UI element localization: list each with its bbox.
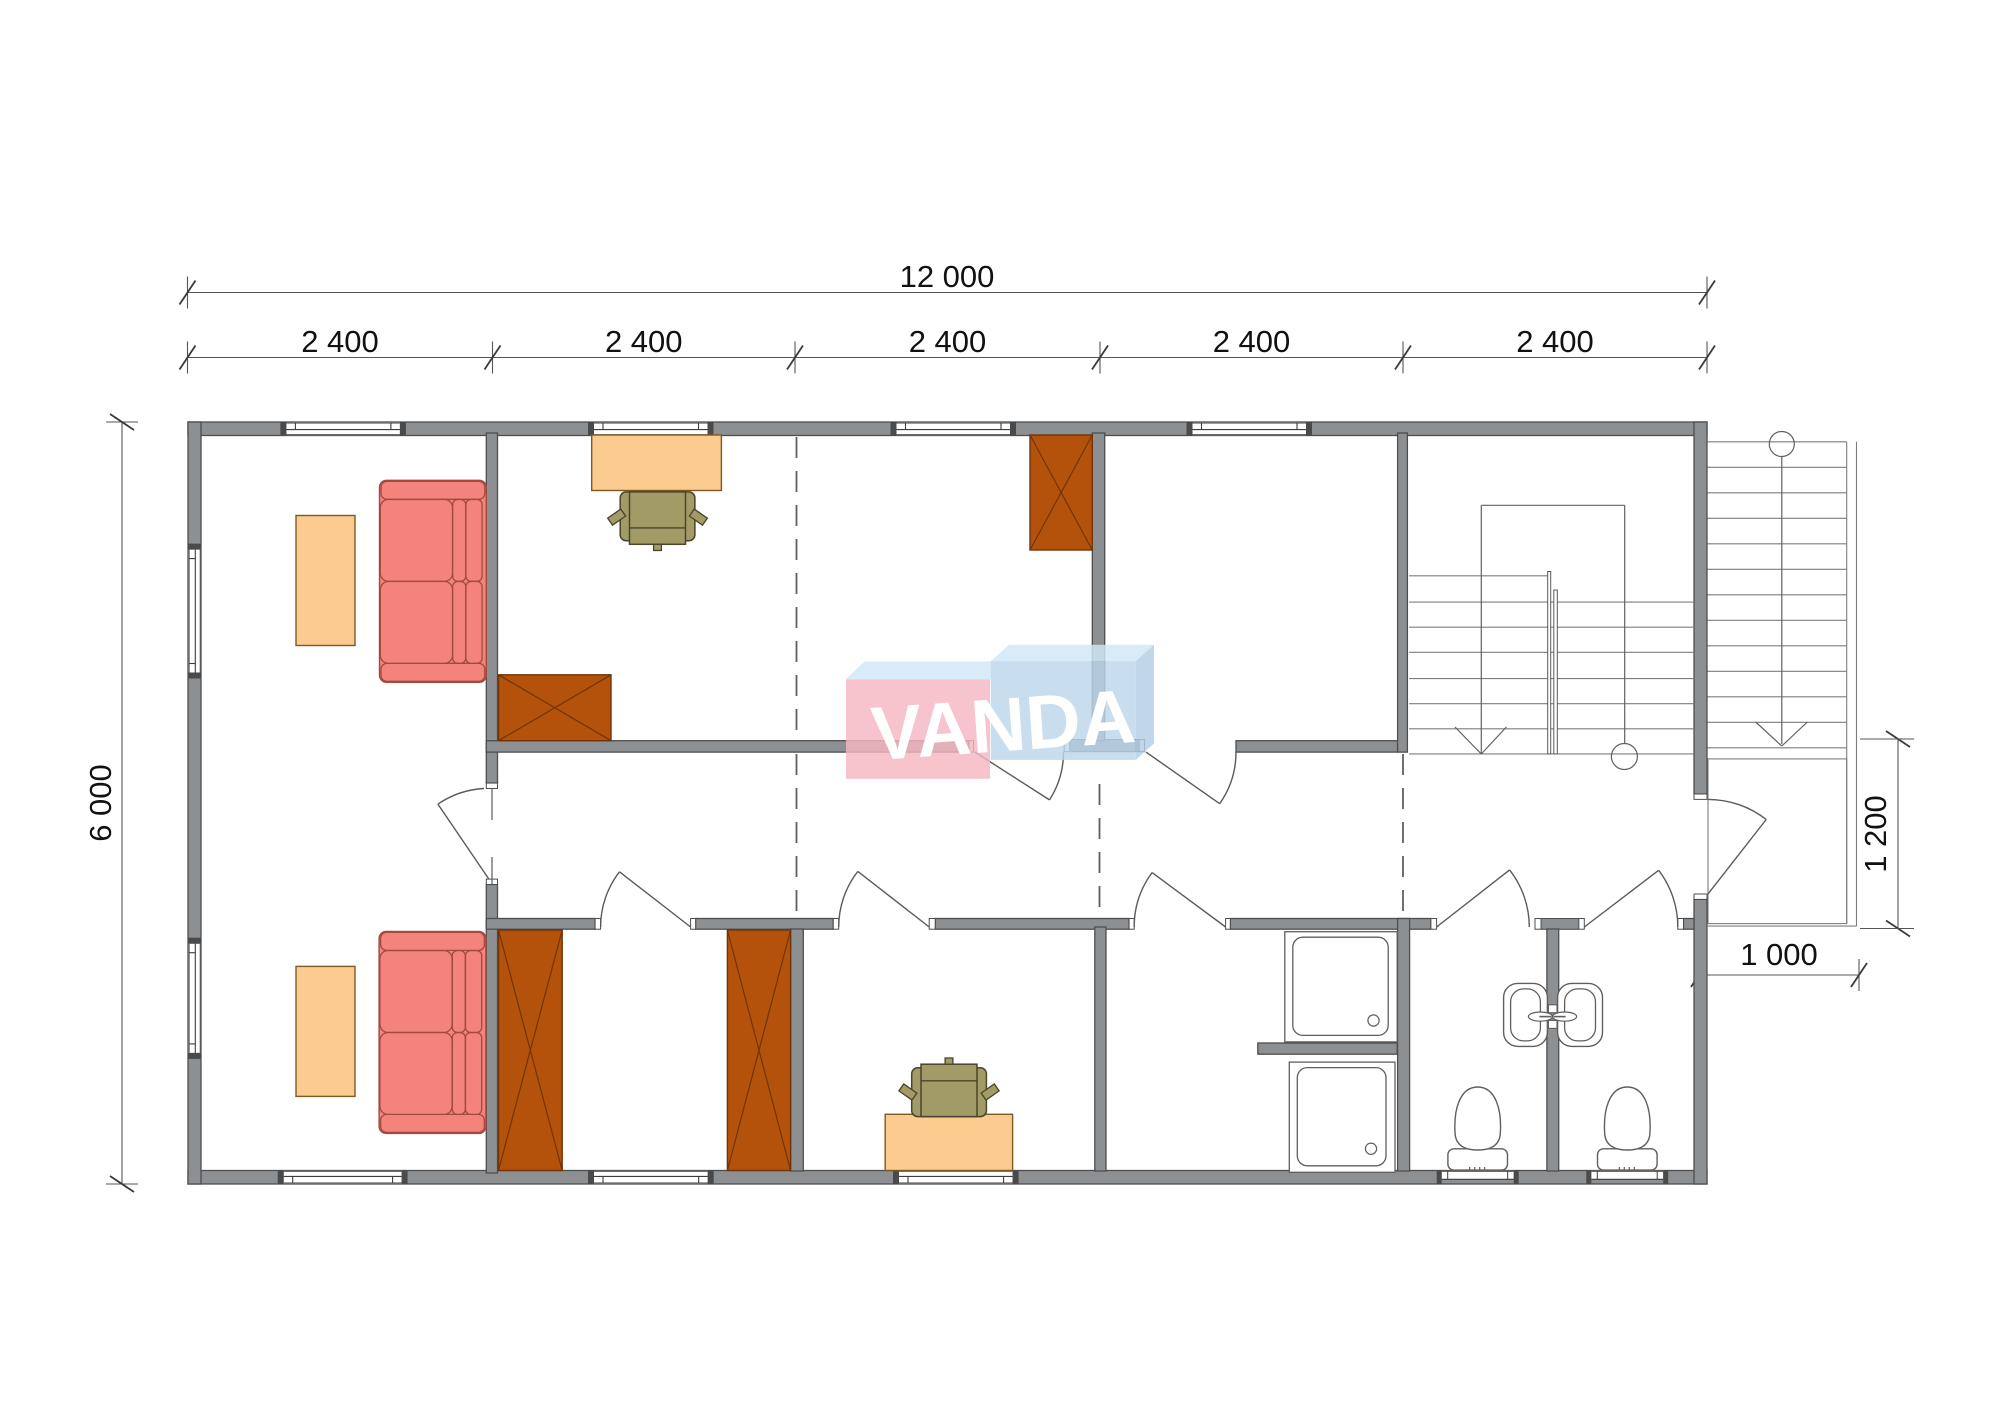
svg-text:2 400: 2 400 (605, 324, 683, 359)
svg-text:2 400: 2 400 (1213, 324, 1291, 359)
svg-text:2 400: 2 400 (909, 324, 987, 359)
svg-text:12 000: 12 000 (900, 259, 995, 294)
svg-text:1 000: 1 000 (1740, 937, 1818, 972)
svg-text:1 200: 1 200 (1858, 795, 1893, 873)
svg-text:2 400: 2 400 (1516, 324, 1594, 359)
svg-text:2 400: 2 400 (301, 324, 379, 359)
svg-text:6 000: 6 000 (83, 764, 118, 842)
